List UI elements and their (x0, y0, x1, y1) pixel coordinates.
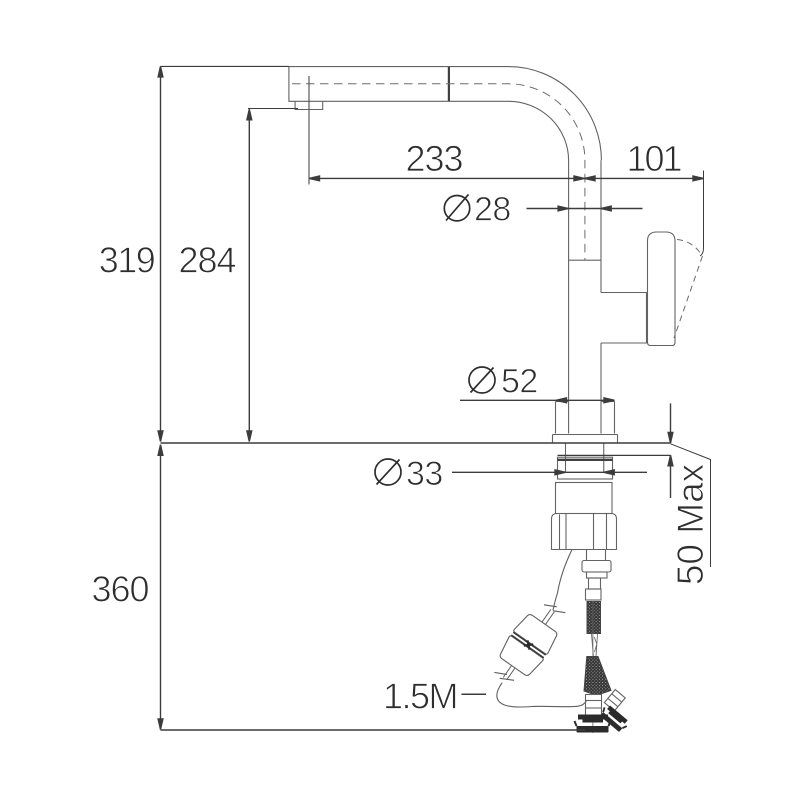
svg-text:284: 284 (178, 240, 235, 281)
svg-text:33: 33 (406, 455, 443, 493)
svg-text:28: 28 (474, 191, 511, 229)
svg-text:50 Max: 50 Max (670, 463, 711, 585)
svg-text:360: 360 (91, 569, 148, 610)
svg-text:1.5M: 1.5M (383, 676, 457, 717)
svg-text:52: 52 (501, 363, 538, 401)
svg-text:101: 101 (626, 138, 681, 179)
svg-text:233: 233 (405, 138, 462, 179)
svg-text:319: 319 (99, 240, 155, 281)
